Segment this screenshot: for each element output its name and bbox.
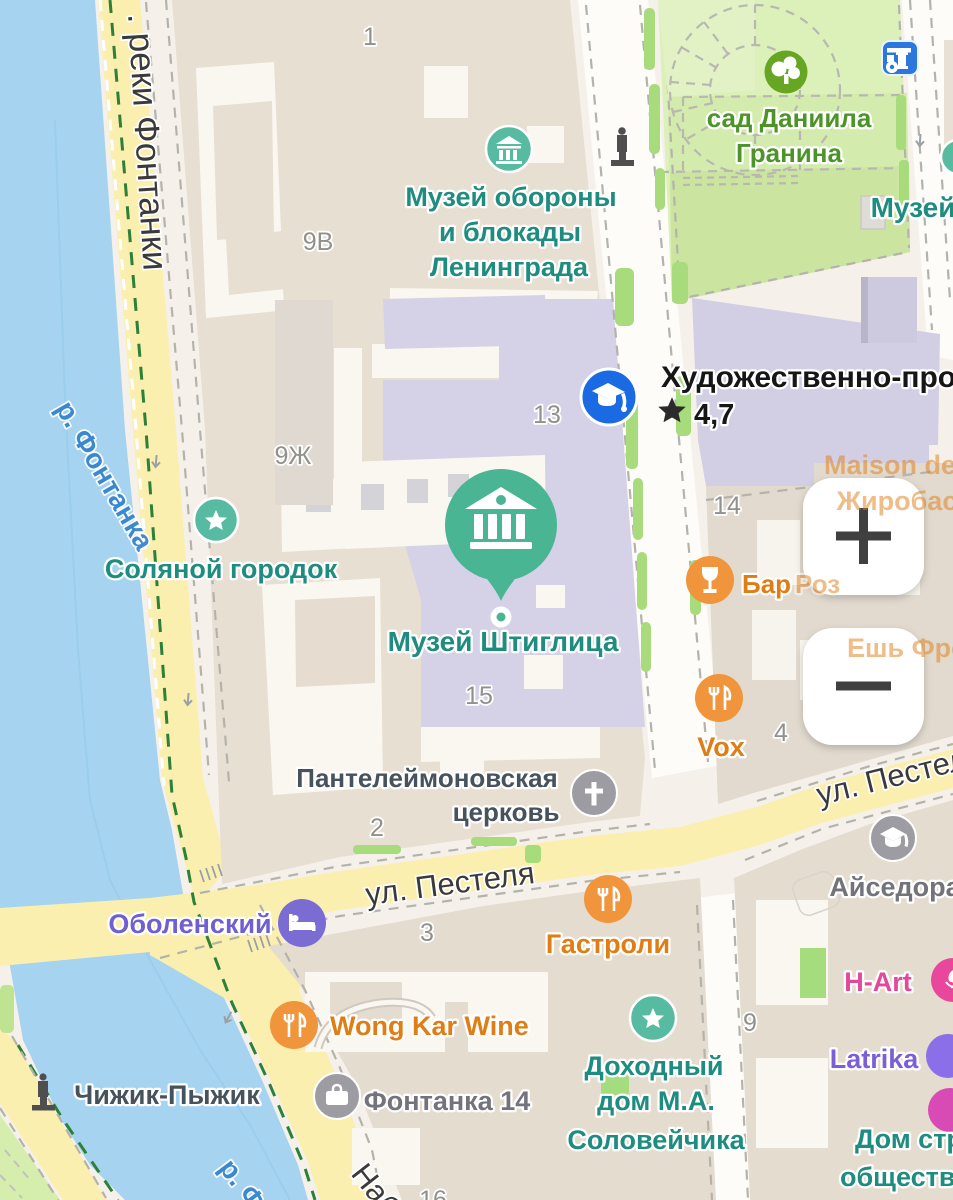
svg-text:церковь: церковь	[453, 797, 560, 827]
svg-text:4: 4	[774, 719, 788, 747]
svg-text:2: 2	[370, 814, 384, 842]
svg-text:3: 3	[420, 919, 434, 947]
svg-text:15: 15	[465, 682, 493, 710]
svg-text:9: 9	[743, 1009, 757, 1037]
svg-text:Бар: Бар	[742, 569, 791, 599]
svg-text:Wong Kar Wine: Wong Kar Wine	[330, 1011, 529, 1041]
svg-text:Maison de: Maison de	[824, 450, 953, 480]
svg-text:Художественно-промышленная: Художественно-промышленная	[661, 361, 953, 394]
svg-text:Музей: Музей	[871, 192, 953, 223]
svg-text:Чижик-Пыжик: Чижик-Пыжик	[74, 1080, 260, 1110]
svg-text:14: 14	[713, 492, 741, 520]
svg-text:13: 13	[533, 401, 561, 429]
svg-text:16: 16	[419, 1186, 447, 1200]
svg-text:и блокады: и блокады	[439, 217, 581, 247]
svg-text:Музей Штиглица: Музей Штиглица	[388, 626, 619, 657]
svg-text:Музей обороны: Музей обороны	[405, 182, 616, 212]
svg-text:Доходный: Доходный	[585, 1051, 724, 1081]
svg-text:Жиробас: Жиробас	[836, 486, 953, 516]
svg-text:9В: 9В	[303, 228, 334, 256]
svg-text:Дом строит: Дом строит	[855, 1124, 953, 1154]
svg-text:Latrika: Latrika	[830, 1044, 920, 1074]
svg-text:Пантелеймоновская: Пантелеймоновская	[296, 763, 557, 793]
svg-text:H-Art: H-Art	[844, 967, 912, 997]
svg-text:Ленинграда: Ленинграда	[430, 252, 589, 282]
svg-text:Ешь Фреш: Ешь Фреш	[847, 633, 953, 663]
svg-text:Гастроли: Гастроли	[546, 929, 670, 959]
svg-text:4,7: 4,7	[694, 399, 734, 431]
svg-text:Соловейчика: Соловейчика	[567, 1125, 745, 1155]
svg-text:Гранина: Гранина	[736, 138, 842, 168]
svg-text:Соляной городок: Соляной городок	[105, 554, 338, 584]
svg-text:Фонтанка 14: Фонтанка 14	[364, 1086, 530, 1116]
svg-text:дом М.А.: дом М.А.	[597, 1086, 715, 1116]
svg-text:9Ж: 9Ж	[275, 442, 312, 470]
svg-text:1: 1	[363, 23, 377, 51]
svg-text:общества: общества	[840, 1162, 953, 1192]
svg-text:Vox: Vox	[697, 732, 745, 762]
svg-text:Оболенский: Оболенский	[108, 909, 271, 939]
svg-text:Роз: Роз	[795, 569, 840, 599]
svg-text:Айседора: Айседора	[829, 872, 953, 902]
svg-text:сад Даниила: сад Даниила	[707, 103, 872, 133]
